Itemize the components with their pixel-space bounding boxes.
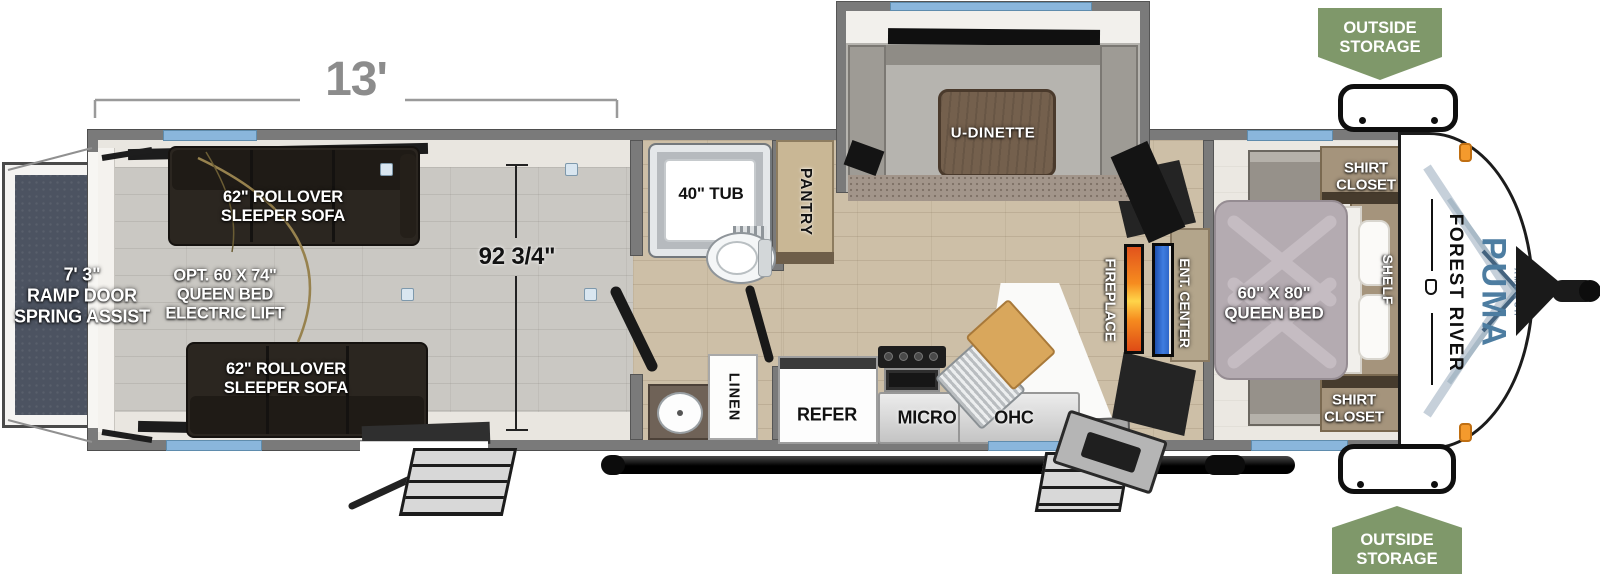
lift-cable [198,158,310,342]
awning-end-cap-right [1205,455,1245,475]
dimension-13-bracket [95,100,617,118]
tongue-cover-top [1338,84,1458,132]
tongue-cover-bottom [1338,444,1456,494]
dimension-92-line [506,165,528,430]
crest-rule-bottom [1431,313,1433,385]
step-flap-tread [1080,431,1141,473]
fr-crest-logo [1425,279,1437,295]
screw-dot [1357,481,1364,488]
screw-dot [1431,117,1438,124]
crest-rule-top [1431,199,1433,271]
hitch [1512,240,1600,350]
lift-cable-short [206,152,234,252]
rear-frame-struts [102,150,152,440]
door-swing-panels [616,290,769,366]
awning-bar [603,456,1295,474]
outside-storage-label-top: OUTSIDE STORAGE [1339,19,1420,57]
outside-storage-label-bottom: OUTSIDE STORAGE [1356,531,1437,569]
ramp-spring-cables [8,148,92,442]
entry-steps-garage [399,448,517,516]
screw-dot [1431,481,1438,488]
marker-light-top [1459,143,1472,162]
awning-end-cap-left [601,455,625,475]
floorplan-canvas: FOREST RIVER PUMA AMBUSH OUTSIDE STORAGE… [0,0,1600,577]
bed-quilt-pattern [1234,222,1330,362]
marker-light-bottom [1459,423,1472,442]
screw-dot [1359,117,1366,124]
